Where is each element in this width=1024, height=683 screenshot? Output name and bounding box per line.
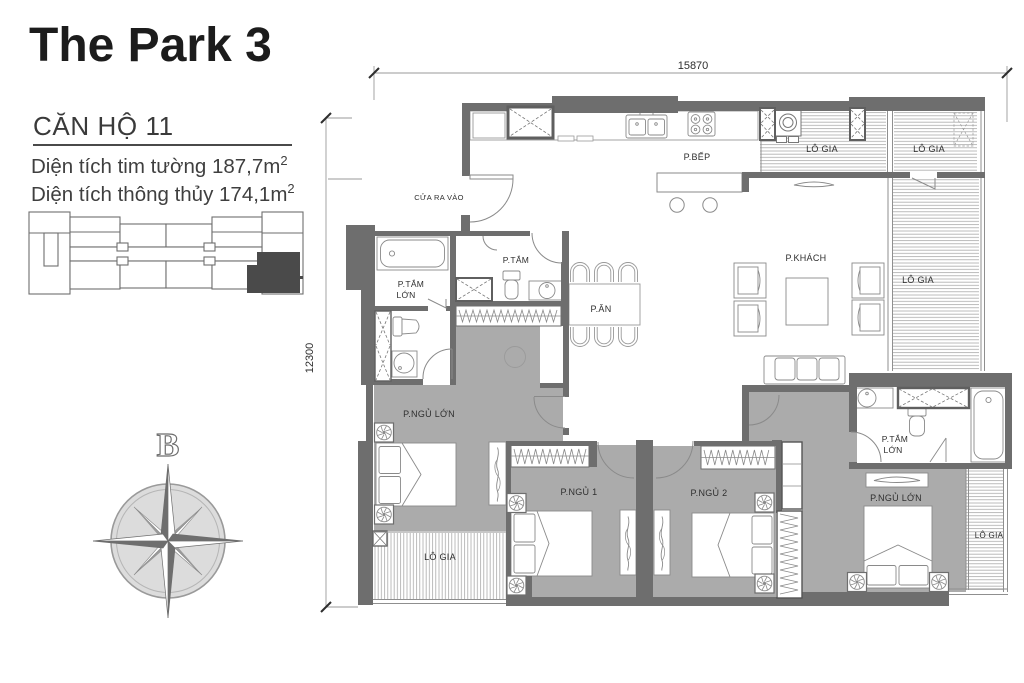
svg-text:P.TẮM: P.TẮM — [882, 434, 908, 444]
svg-text:LÔ GIA: LÔ GIA — [975, 531, 1004, 540]
svg-text:P.ĂN: P.ĂN — [590, 304, 611, 314]
svg-text:LÔ GIA: LÔ GIA — [902, 275, 934, 285]
svg-text:LÔ GIA: LÔ GIA — [424, 552, 456, 562]
svg-text:LỚN: LỚN — [883, 445, 902, 455]
svg-text:LỚN: LỚN — [396, 290, 415, 300]
svg-text:P.NGỦ 1: P.NGỦ 1 — [561, 486, 598, 497]
svg-text:15870: 15870 — [678, 60, 709, 72]
svg-text:P.KHÁCH: P.KHÁCH — [786, 253, 827, 263]
svg-text:LÔ GIA: LÔ GIA — [913, 144, 945, 154]
svg-text:LÔ GIA: LÔ GIA — [806, 144, 838, 154]
svg-text:P.BẾP: P.BẾP — [684, 152, 711, 162]
svg-text:12300: 12300 — [304, 343, 316, 374]
svg-text:P.NGỦ 2: P.NGỦ 2 — [691, 487, 728, 498]
svg-text:B: B — [157, 427, 180, 464]
svg-text:P.TẮM: P.TẮM — [398, 279, 424, 289]
svg-text:P.NGỦ LỚN: P.NGỦ LỚN — [870, 492, 922, 503]
svg-text:CỬA RA VÀO: CỬA RA VÀO — [414, 193, 463, 202]
svg-text:P.TẮM: P.TẮM — [503, 255, 529, 265]
svg-text:P.NGỦ LỚN: P.NGỦ LỚN — [403, 408, 455, 419]
